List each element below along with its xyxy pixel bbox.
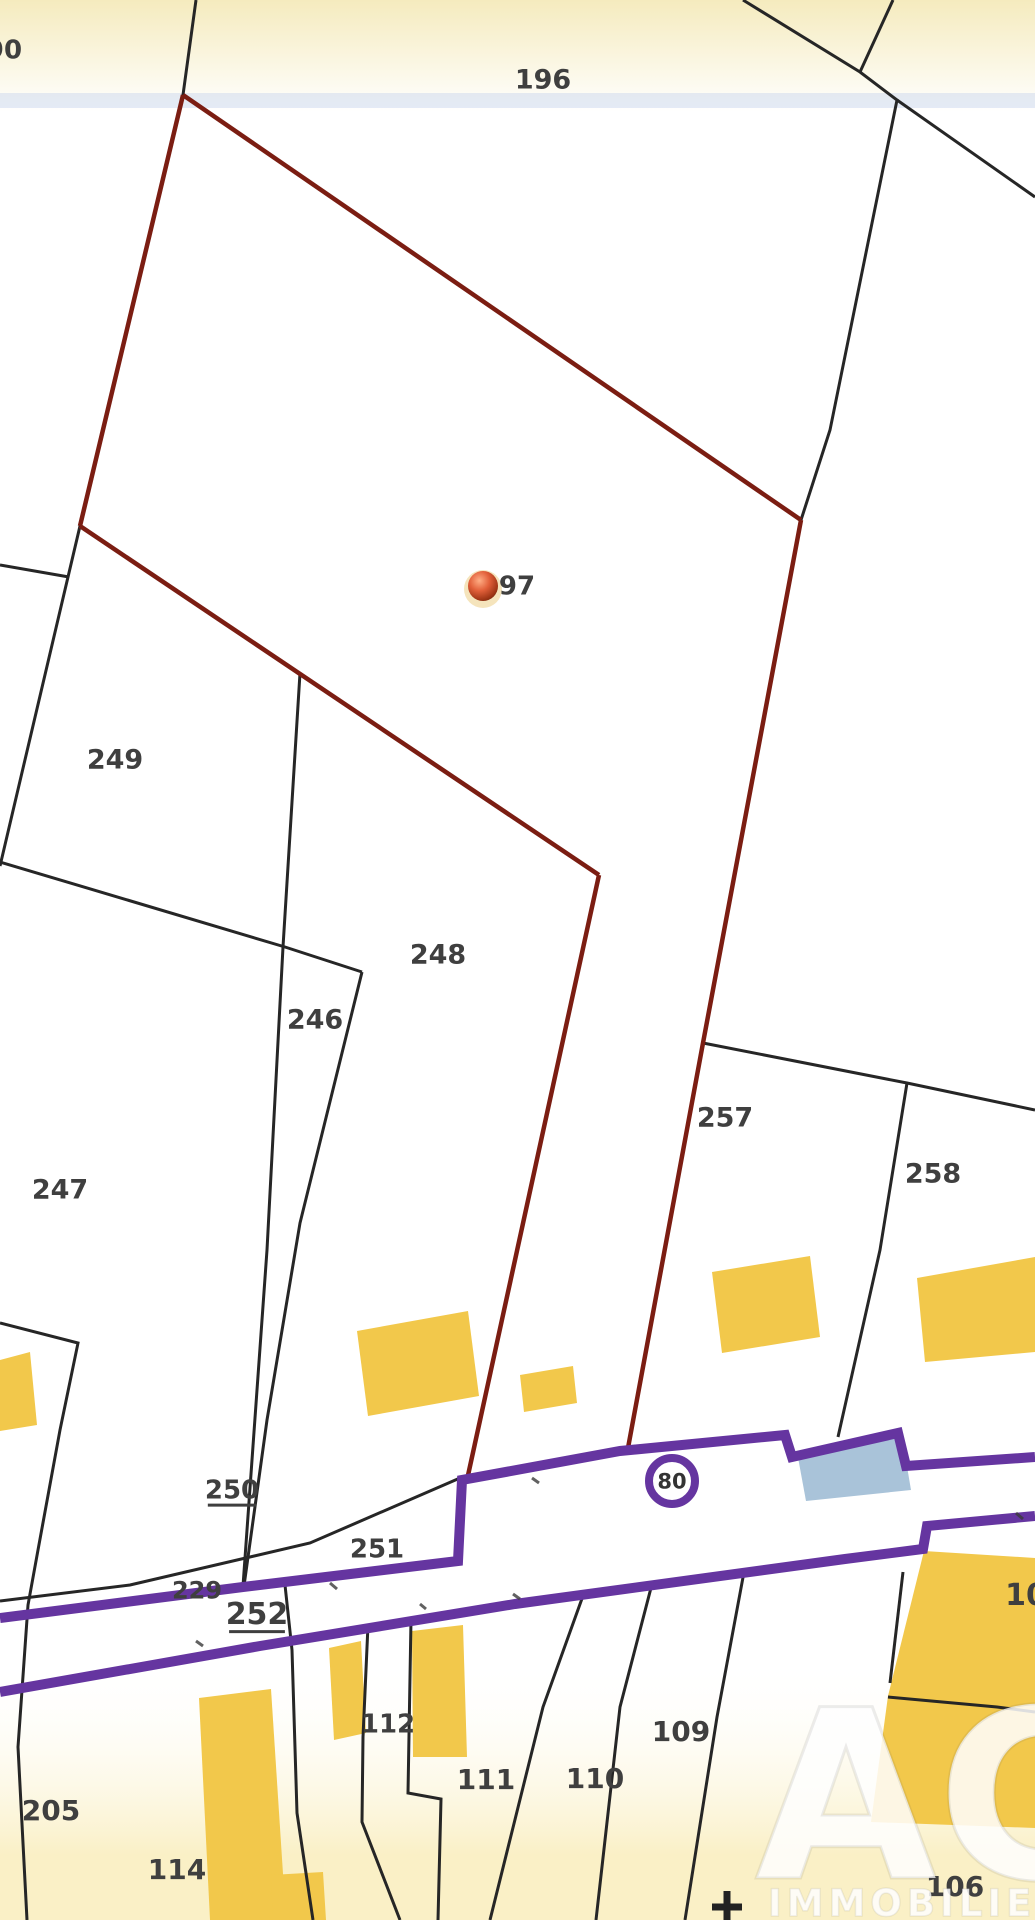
parcel-label: 251 [350, 1534, 404, 1564]
property-marker [468, 571, 498, 601]
agency-watermark: ACIMMOBILIER [755, 1661, 1035, 1920]
parcel-label: 112 [361, 1709, 415, 1739]
parcel-label: 90 [0, 35, 22, 65]
building-114-annex [271, 1872, 326, 1920]
parcel-label: 110 [566, 1762, 624, 1795]
building-112-east [412, 1625, 467, 1757]
agency-watermark-name: IMMOBILIER [768, 1882, 1035, 1920]
parcel-label: 248 [410, 940, 466, 971]
road-number-badge-label: 80 [657, 1470, 686, 1494]
parcel-label: 10 [1005, 1578, 1035, 1613]
property-marker-label: 97 [499, 571, 535, 601]
parcel-label: 257 [697, 1103, 753, 1134]
parcel-label: 249 [87, 745, 143, 776]
parcel-label: 252 [226, 1597, 289, 1632]
cadastral-map: 8090196249247246248257258250251229252205… [0, 0, 1035, 1920]
building-257 [712, 1256, 820, 1353]
parcel-label: 250 [205, 1475, 259, 1505]
parcel-label: 246 [287, 1005, 343, 1036]
parcel-label: 205 [22, 1794, 80, 1827]
parcel-label: 114 [148, 1853, 206, 1886]
parcel-label: 109 [652, 1715, 710, 1748]
parcel-label: 258 [905, 1159, 961, 1190]
parcel-label: 196 [515, 65, 571, 96]
parcel-label: 111 [457, 1763, 515, 1796]
map-background [0, 0, 1035, 1920]
parcel-label: 247 [32, 1175, 88, 1206]
map-canvas: 8090196249247246248257258250251229252205… [0, 0, 1035, 1920]
parcel-label: 229 [172, 1577, 222, 1605]
